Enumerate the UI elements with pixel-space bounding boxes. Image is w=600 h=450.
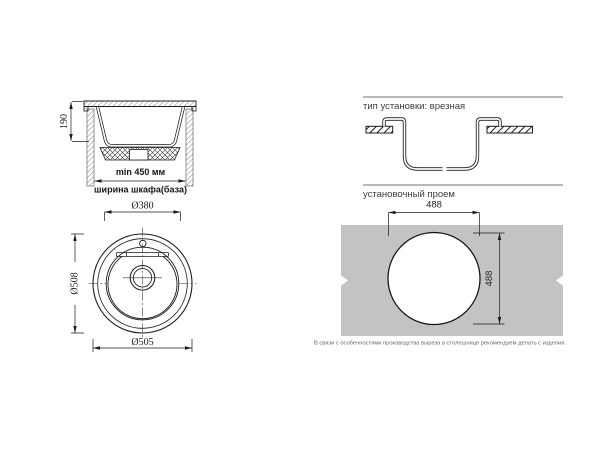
side-diameter-label: Ø508 bbox=[70, 272, 81, 294]
production-note: В связи с особенностями производства выр… bbox=[314, 341, 566, 347]
cutout-height-label: 488 bbox=[484, 271, 495, 287]
cabinet-width-label: ширина шкафа(база) bbox=[94, 185, 187, 195]
mount-type-heading: тип установки: врезная bbox=[363, 101, 465, 112]
tap-hole-circle bbox=[140, 240, 146, 246]
countertop-section-right bbox=[487, 126, 533, 133]
cabinet-wall-right bbox=[186, 109, 193, 186]
cutout-figure: установочный проем 488 488 В связи с осо… bbox=[314, 185, 566, 347]
bottom-diameter-label: Ø505 bbox=[131, 337, 153, 348]
countertop-section-left bbox=[366, 126, 393, 133]
rim-lip-left bbox=[84, 107, 88, 112]
depth-dimension-label: 190 bbox=[59, 114, 70, 129]
mount-type-figure: тип установки: врезная bbox=[363, 97, 563, 169]
sink-installation-drawing: 190 min 450 мм ширина шкафа(база) Ø380 Ø… bbox=[0, 0, 600, 450]
drain-recess bbox=[130, 150, 149, 161]
section-view-figure: 190 min 450 мм ширина шкафа(база) bbox=[59, 101, 196, 195]
sink-rim-section bbox=[84, 101, 196, 107]
bowl-wall-outline bbox=[98, 107, 184, 146]
top-diameter-label: Ø380 bbox=[131, 201, 153, 212]
technical-drawing-svg: 190 min 450 мм ширина шкафа(база) Ø380 Ø… bbox=[0, 0, 600, 450]
bowl-wall-inner bbox=[98, 107, 184, 146]
cutout-circle bbox=[388, 233, 480, 325]
cutout-heading: установочный проем bbox=[363, 189, 455, 200]
cutout-width-label: 488 bbox=[426, 200, 442, 211]
rim-lip-right bbox=[192, 107, 196, 112]
top-diameter-ext bbox=[105, 212, 181, 221]
cabinet-wall-left bbox=[87, 109, 94, 186]
plan-view-figure: Ø380 Ø508 Ø505 bbox=[70, 201, 197, 353]
min-width-label: min 450 мм bbox=[116, 167, 166, 177]
